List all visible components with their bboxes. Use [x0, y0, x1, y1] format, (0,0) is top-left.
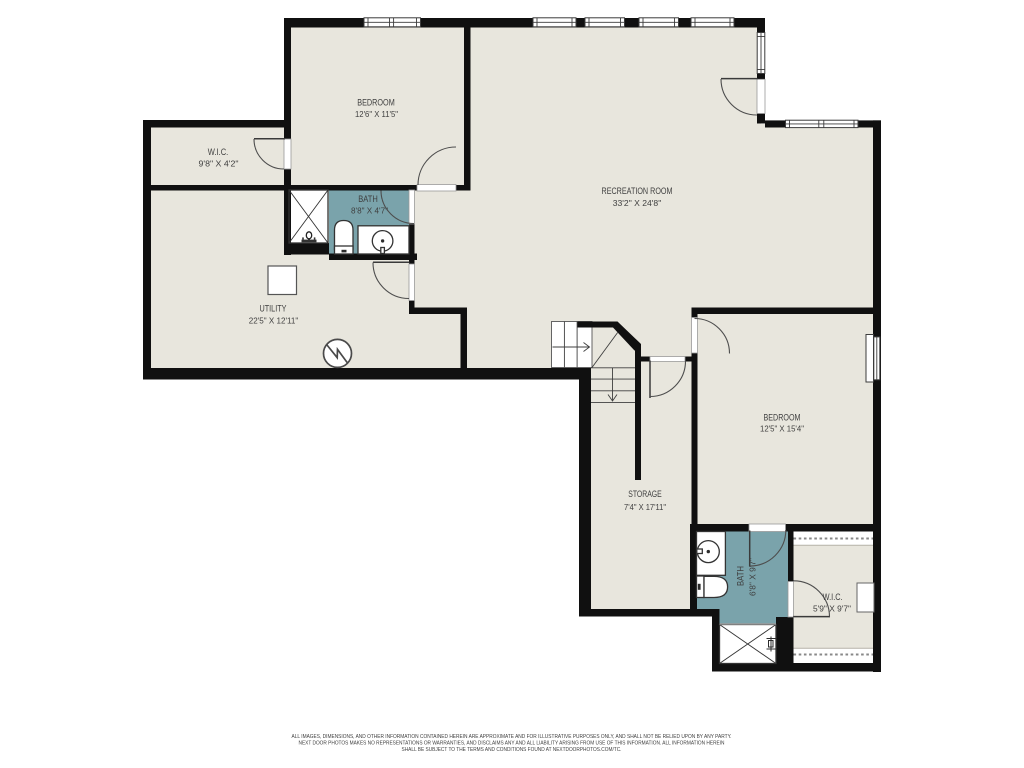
svg-text:33'2" X 24'8": 33'2" X 24'8"	[613, 199, 662, 208]
svg-text:W.I.C.: W.I.C.	[823, 592, 843, 603]
svg-text:8'8" X 4'7": 8'8" X 4'7"	[351, 206, 388, 215]
svg-text:UTILITY: UTILITY	[260, 304, 287, 315]
svg-text:BEDROOM: BEDROOM	[764, 413, 801, 424]
svg-text:5'9" X 9'7": 5'9" X 9'7"	[813, 605, 851, 614]
svg-text:W.I.C.: W.I.C.	[208, 147, 229, 158]
svg-text:STORAGE: STORAGE	[628, 489, 662, 500]
svg-text:22'5" X 12'11": 22'5" X 12'11"	[249, 317, 299, 326]
svg-text:12'5" X 15'4": 12'5" X 15'4"	[760, 424, 804, 433]
svg-text:RECREATION ROOM: RECREATION ROOM	[602, 186, 673, 197]
svg-text:BEDROOM: BEDROOM	[357, 98, 395, 109]
svg-text:12'6" X 11'5": 12'6" X 11'5"	[355, 110, 398, 119]
svg-text:9'8" X 4'2": 9'8" X 4'2"	[199, 160, 239, 169]
svg-text:ALL IMAGES, DIMENSIONS, AND OT: ALL IMAGES, DIMENSIONS, AND OTHER INFORM…	[292, 734, 732, 740]
svg-text:7'4" X 17'11": 7'4" X 17'11"	[624, 503, 666, 512]
svg-text:6'8" X 9'7": 6'8" X 9'7"	[749, 558, 758, 596]
svg-text:SHALL BE SUBJECT TO THE TERMS: SHALL BE SUBJECT TO THE TERMS AND CONDIT…	[402, 747, 622, 753]
svg-text:BATH: BATH	[358, 194, 378, 205]
svg-text:BATH: BATH	[736, 566, 747, 586]
svg-text:NEXT DOOR PHOTOS MAKES NO REPR: NEXT DOOR PHOTOS MAKES NO REPRESENTATION…	[299, 741, 725, 747]
